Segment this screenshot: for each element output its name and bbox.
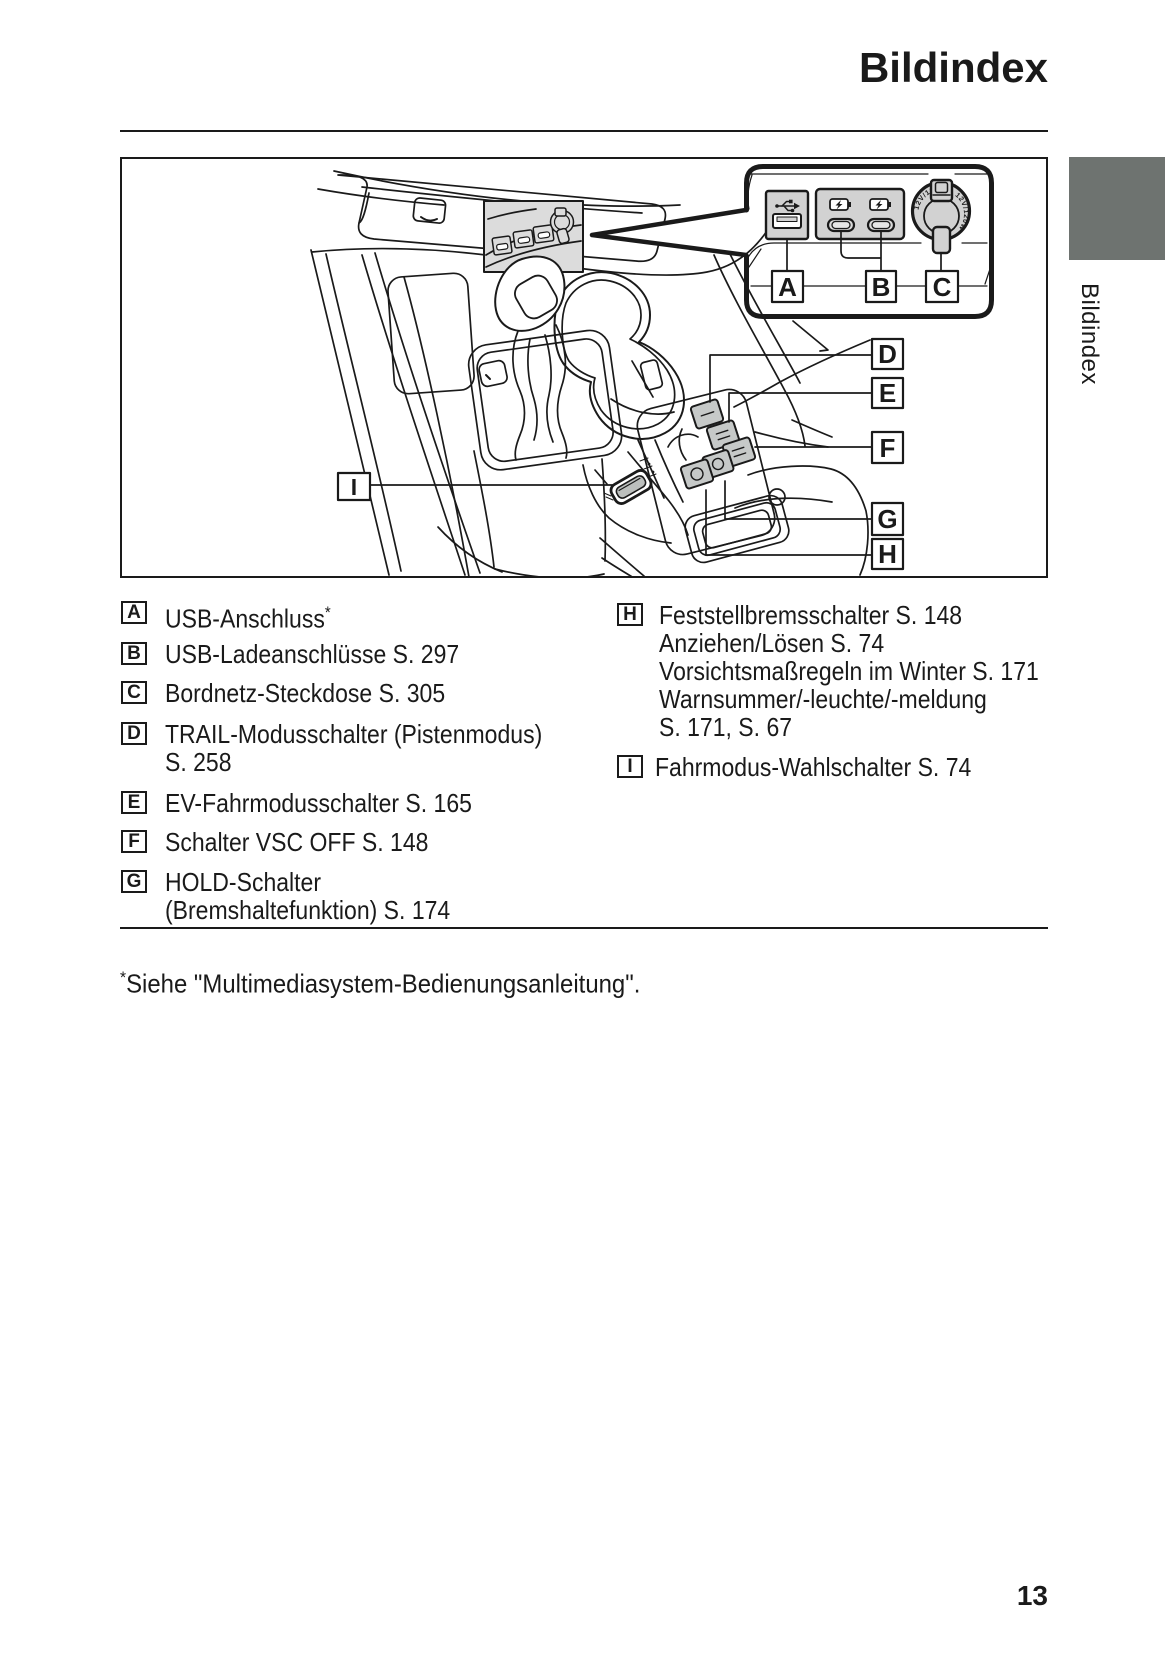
svg-text:A: A [778, 272, 797, 302]
svg-text:H: H [878, 539, 897, 569]
svg-text:G: G [877, 504, 897, 534]
svg-text:E: E [879, 378, 896, 408]
svg-text:F: F [880, 433, 896, 463]
svg-text:D: D [878, 339, 897, 369]
svg-text:B: B [872, 272, 891, 302]
svg-text:I: I [351, 474, 357, 500]
svg-text:C: C [933, 272, 952, 302]
